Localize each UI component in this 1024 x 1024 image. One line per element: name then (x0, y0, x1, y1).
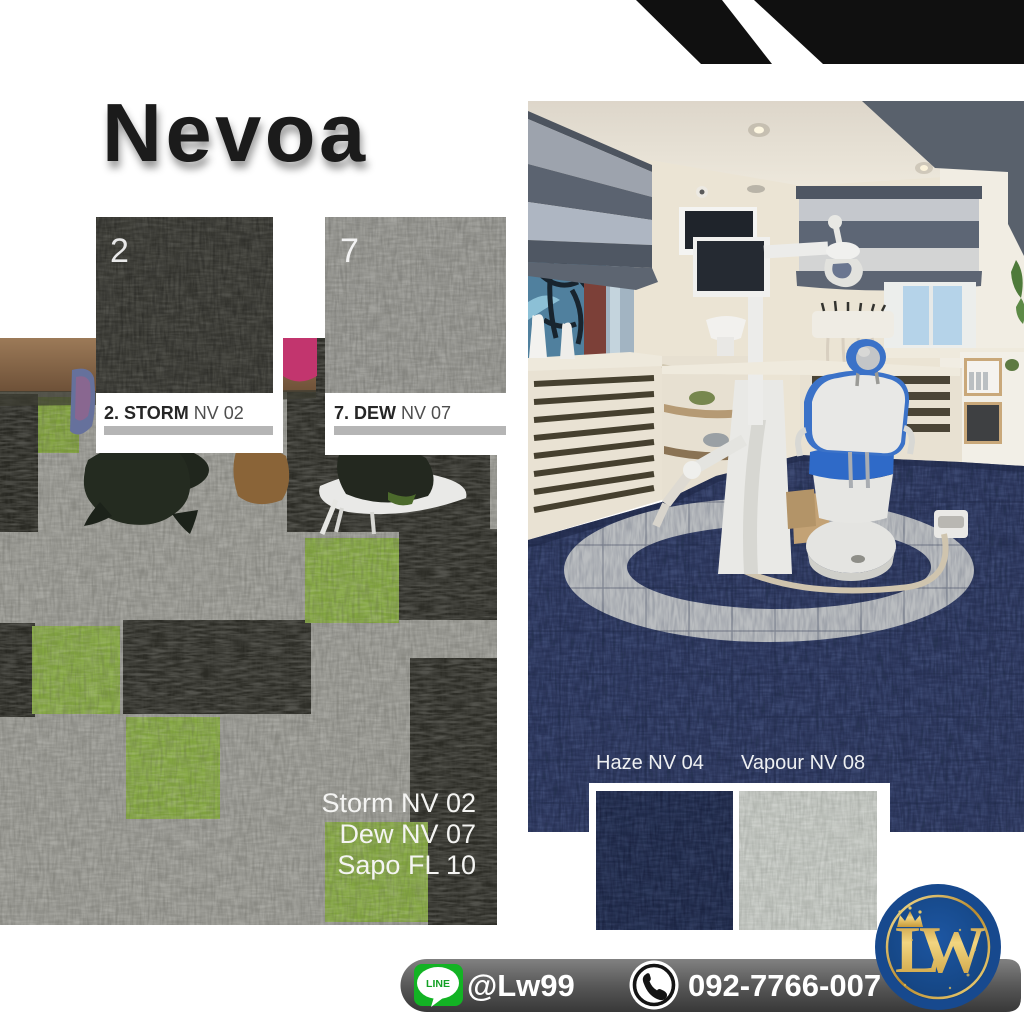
svg-text:@Lw99: @Lw99 (467, 968, 575, 1003)
svg-text:Vapour NV 08: Vapour NV 08 (741, 752, 865, 774)
svg-text:092-7766-007: 092-7766-007 (688, 968, 881, 1003)
svg-text:7. DEW NV 07: 7. DEW NV 07 (334, 403, 451, 423)
svg-text:7: 7 (340, 232, 359, 270)
svg-text:Haze NV 04: Haze NV 04 (596, 752, 704, 774)
svg-text:2: 2 (110, 232, 129, 270)
svg-text:Storm NV 02: Storm NV 02 (321, 788, 476, 818)
svg-text:Nevoa: Nevoa (102, 86, 369, 179)
svg-text:Sapo FL 10: Sapo FL 10 (337, 850, 476, 880)
svg-text:2. STORM NV 02: 2. STORM NV 02 (104, 403, 244, 423)
svg-text:Dew NV 07: Dew NV 07 (339, 819, 476, 849)
svg-text:LINE: LINE (426, 978, 450, 990)
